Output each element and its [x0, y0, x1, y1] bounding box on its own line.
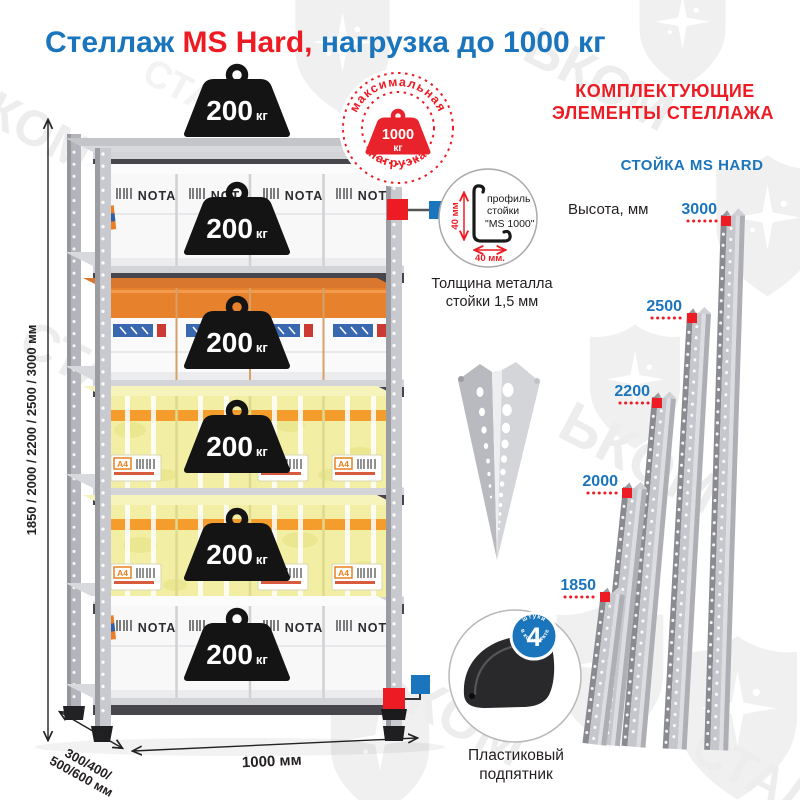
width-dimension-label: 1000 мм — [242, 752, 302, 772]
profile-text-line1: профиль — [487, 193, 531, 205]
a4-label: A4 — [338, 568, 349, 578]
watermark-text: КОМ — [0, 80, 101, 182]
foot-detail: 4 штуки в комплекте Пластиковый подпятни… — [449, 610, 581, 783]
badge-unit: кг — [393, 143, 402, 154]
post-height-label-1850: 1850 — [560, 577, 596, 594]
a4-label: A4 — [117, 568, 128, 578]
infographic-canvas: КОМ СТА ЬКОМ СТАЛ ЬКОМ СТАЛЬКОМ СТАЛ Сте… — [0, 0, 800, 800]
weight-value: 200 — [206, 95, 253, 126]
weight-value: 200 — [206, 539, 253, 570]
title-part-2: MS Hard, — [174, 26, 312, 59]
box-brand-label: NOTA — [285, 189, 324, 203]
a4-label: A4 — [338, 459, 349, 469]
weight-value: 200 — [206, 213, 253, 244]
title-part-3: нагрузка до 1000 кг — [312, 26, 605, 59]
rack-foot — [63, 706, 85, 720]
weight-unit: кг — [256, 108, 269, 123]
profile-perspective-view — [458, 362, 540, 560]
thickness-note-line2: стойки 1,5 мм — [446, 294, 539, 310]
infographic: КОМ СТА ЬКОМ СТАЛ ЬКОМ СТАЛЬКОМ СТАЛ Сте… — [0, 0, 800, 800]
a4-label: A4 — [117, 459, 128, 469]
profile-text-line3: "MS 1000" — [485, 218, 535, 230]
marker-blue-square — [411, 675, 430, 694]
count-badge: 4 штуки в комплекте — [511, 613, 557, 659]
box-brand-label: NOTA — [285, 621, 324, 635]
title-part-1: Стеллаж — [45, 26, 175, 59]
rack-foot — [91, 726, 113, 742]
marker-post-callout — [387, 199, 447, 220]
post-height-label-3000: 3000 — [681, 201, 717, 218]
max-load-badge: максимальная нагрузка 1000 кг — [339, 69, 457, 187]
components-heading-line1: КОМПЛЕКТУЮЩИЕ — [575, 81, 755, 101]
box-brand-label: NOTA — [138, 189, 177, 203]
weight-value: 200 — [206, 639, 253, 670]
foot-caption-line1: Пластиковый — [468, 747, 564, 764]
foot-caption-line2: подпятник — [479, 766, 553, 783]
profile-text-line2: стойки — [487, 205, 519, 217]
dimension-depth: 300/400/500/600 мм — [47, 712, 122, 800]
badge-value: 1000 — [382, 127, 414, 143]
weight-unit: кг — [256, 444, 269, 459]
weight-value: 200 — [206, 431, 253, 462]
rack-back-post — [63, 134, 85, 720]
marker-foot-shape — [381, 709, 407, 720]
post-height-label-2200: 2200 — [614, 383, 650, 400]
rack-front-post-right — [383, 158, 405, 741]
post-height-label-2000: 2000 — [582, 473, 618, 490]
box-brand-label: NOTA — [138, 621, 177, 635]
weight-unit: кг — [256, 226, 269, 241]
page-title: Стеллаж MS Hard, нагрузка до 1000 кг — [45, 26, 606, 59]
thickness-note-line1: Толщина металла — [431, 276, 553, 292]
weight-unit: кг — [256, 552, 269, 567]
dimension-height: 1850 / 2000 / 2200 / 2500 / 3000 мм — [24, 120, 48, 740]
height-dimension-label: 1850 / 2000 / 2200 / 2500 / 3000 мм — [24, 325, 39, 536]
profile-dim-vertical: 40 мм — [450, 202, 461, 229]
post-subheading: СТОЙКА MS HARD — [621, 156, 764, 174]
weight-unit: кг — [256, 340, 269, 355]
marker-red-square — [383, 688, 405, 709]
rack-front-post-left — [91, 148, 113, 742]
weight-unit: кг — [256, 652, 269, 667]
components-heading-line2: ЭЛЕМЕНТЫ СТЕЛЛАЖА — [552, 103, 774, 123]
post-height-label-2500: 2500 — [646, 298, 682, 315]
marker-red-square — [387, 199, 408, 220]
profile-dim-horizontal: 40 мм. — [475, 253, 505, 264]
height-axis-label: Высота, мм — [568, 201, 648, 218]
weight-value: 200 — [206, 327, 253, 358]
profile-detail: 40 мм 40 мм. профиль стойки "MS 1000" — [439, 169, 537, 267]
